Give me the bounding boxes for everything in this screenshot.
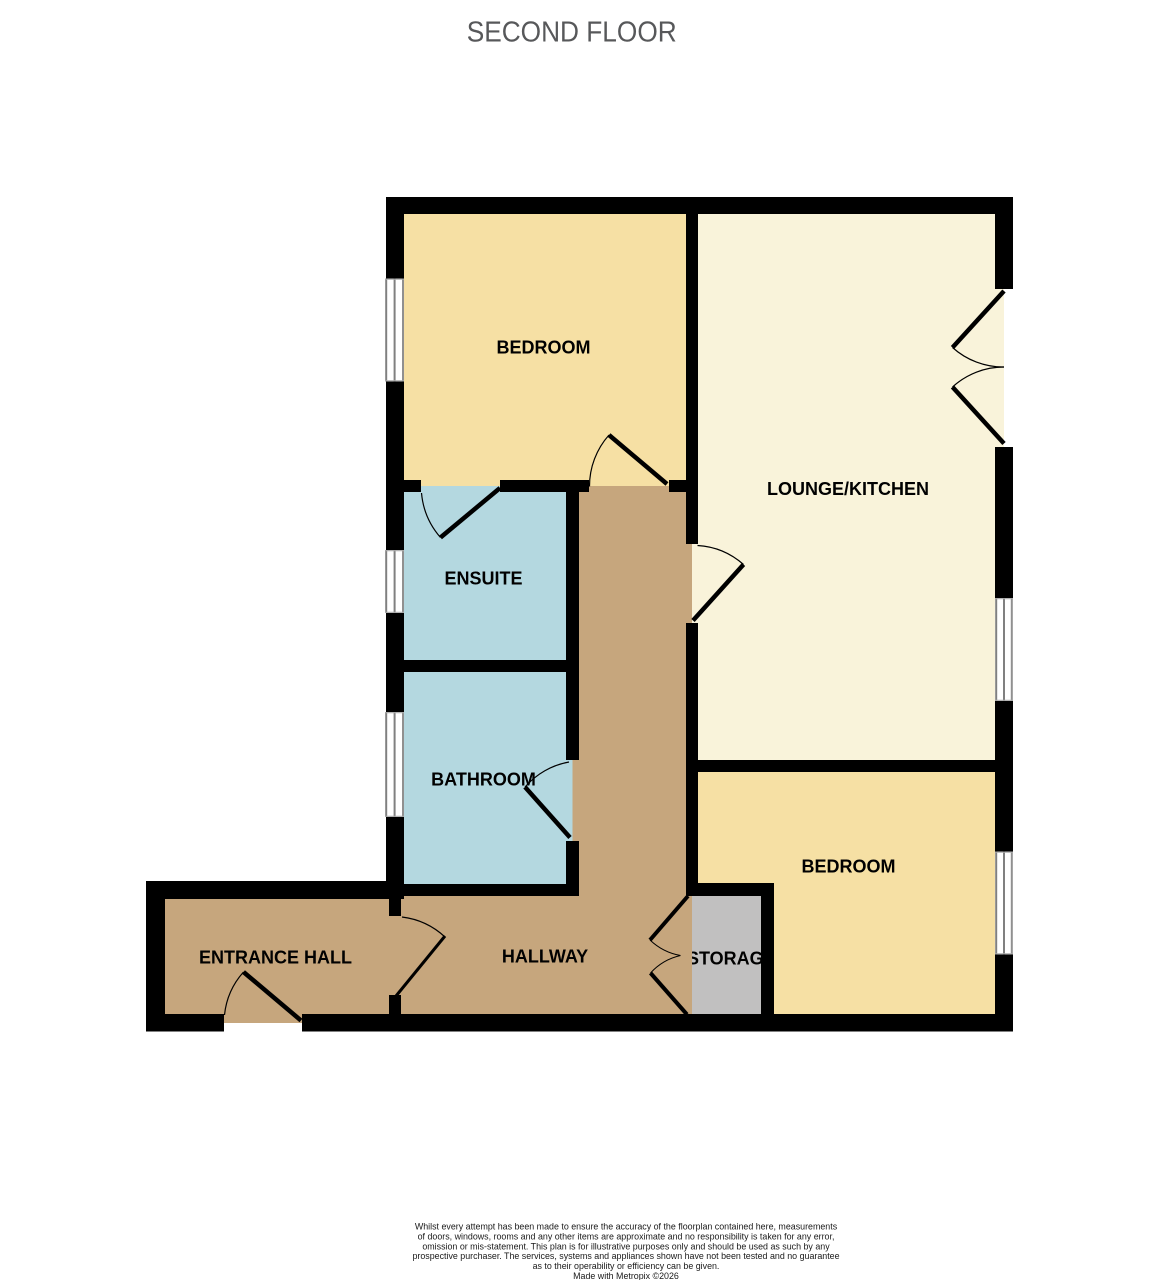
svg-text:omission or mis-statement. Thi: omission or mis-statement. This plan is … (422, 1241, 830, 1251)
svg-text:prospective purchaser. The ser: prospective purchaser. The services, sys… (412, 1251, 839, 1261)
svg-text:SECOND FLOOR: SECOND FLOOR (467, 16, 677, 48)
svg-text:BATHROOM: BATHROOM (431, 770, 536, 790)
svg-text:BEDROOM: BEDROOM (497, 338, 591, 358)
svg-text:ENSUITE: ENSUITE (444, 569, 522, 589)
svg-text:Whilst every attempt has been: Whilst every attempt has been made to en… (415, 1222, 838, 1232)
svg-text:of doors, windows, rooms and a: of doors, windows, rooms and any other i… (418, 1231, 835, 1241)
svg-text:HALLWAY: HALLWAY (502, 947, 588, 967)
svg-text:BEDROOM: BEDROOM (802, 857, 896, 877)
svg-text:ENTRANCE HALL: ENTRANCE HALL (199, 948, 352, 968)
svg-text:LOUNGE/KITCHEN: LOUNGE/KITCHEN (767, 479, 929, 499)
svg-text:as to their operability or eff: as to their operability or efficiency ca… (533, 1261, 720, 1271)
svg-text:Made with Metropix ©2026: Made with Metropix ©2026 (573, 1271, 679, 1280)
